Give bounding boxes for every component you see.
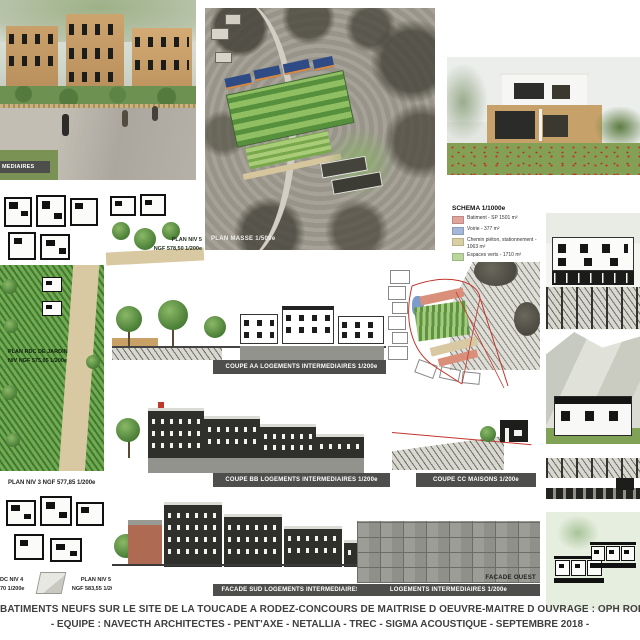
- section-building: [316, 434, 364, 461]
- facade-ouest-title: FACADE OUEST: [485, 575, 536, 581]
- unit-plan: [571, 560, 586, 576]
- unit-plan: [42, 277, 62, 292]
- section-building: [282, 306, 334, 344]
- unit-plan: [40, 234, 70, 260]
- coupe-bb-label: COUPE BB LOGEMENTS INTERMEDIAIRES 1/200e: [213, 473, 390, 487]
- unit-plan: [555, 560, 570, 576]
- glazing: [495, 111, 535, 139]
- house-roof: [215, 52, 232, 63]
- plan-units-top: [0, 192, 104, 265]
- unit-plan: [76, 502, 104, 526]
- retaining-wall: [112, 338, 158, 346]
- elevation-b-panel: [546, 332, 640, 480]
- unit-plan: [606, 546, 620, 561]
- red-boundary-lines: [386, 262, 540, 392]
- plan-group: [590, 542, 636, 570]
- tree: [112, 222, 130, 240]
- plan-niv5-label: PLAN NIV 5 NGF 578,50 1/200e: [134, 236, 202, 254]
- label-line: NGF 578,50 1/200e: [134, 245, 202, 254]
- coupe-bb-panel: COUPE BB LOGEMENTS INTERMEDIAIRES 1/200e: [112, 392, 390, 489]
- footer-line2: - EQUIPE : NAVECTH ARCHITECTES - PENT'AX…: [0, 619, 640, 630]
- plan-niv3-label: PLAN NIV 3 NGF 577,85 1/200e: [0, 473, 112, 493]
- unit-plan: [110, 196, 136, 216]
- facade-block-red: [128, 520, 162, 565]
- tree: [204, 316, 226, 338]
- unit-plan: [70, 198, 98, 226]
- facade-block: [164, 502, 222, 567]
- plan-masse-label: PLAN MASSE 1/500e: [211, 236, 275, 242]
- section-building: [240, 314, 278, 344]
- label-line: DC NIV 4: [0, 576, 34, 585]
- window-band: [9, 56, 55, 66]
- building: [66, 14, 124, 90]
- footer-line1: BATIMENTS NEUFS SUR LE SITE DE LA TOUCAD…: [0, 604, 640, 615]
- house-roof: [211, 28, 229, 40]
- window-band: [135, 37, 189, 47]
- building-row: [313, 56, 335, 71]
- facade-sud-panel: FACADE SUD LOGEMENTS INTERMEDIAIRES 1/20…: [112, 496, 390, 595]
- house-lower-volume: [487, 105, 602, 143]
- unit-plan: [591, 546, 605, 561]
- coupe-aa-panel: COUPE AA LOGEMENTS INTERMEDIAIRES 1/200e: [112, 284, 390, 378]
- legend-item: Chemin piéton, stationnement - 1063 m²: [452, 237, 538, 250]
- unit-plan: [6, 500, 36, 526]
- section-building: [260, 424, 316, 461]
- tree: [2, 385, 17, 400]
- hedge: [0, 86, 196, 106]
- tree: [4, 319, 18, 333]
- elevation-building: [552, 237, 634, 271]
- bushes: [595, 107, 640, 147]
- presentation-board: MEDIAIRES PLAN MASSE 1/500e: [0, 0, 640, 640]
- window-band: [9, 34, 55, 44]
- swatch-chemin: [452, 238, 464, 246]
- render-right-panel: [447, 57, 640, 175]
- house-upper-volume: [502, 75, 587, 106]
- unit-plan: [140, 194, 166, 216]
- coupe-cc-panel: COUPE CC MAISONS 1/200e: [392, 392, 540, 489]
- facade-ouest-label: LOGEMENTS INTERMEDIAIRES 1/200e: [357, 584, 540, 596]
- coupe-aa-label: COUPE AA LOGEMENTS INTERMEDIAIRES 1/200e: [213, 360, 390, 374]
- elevation-base: [552, 271, 634, 285]
- window-band: [69, 24, 121, 35]
- label-line: PLAN RDC DE JARDIN: [8, 348, 102, 357]
- legend-label: Voirie - 377 m²: [467, 226, 500, 233]
- plan-rdc-jardin-label: PLAN RDC DE JARDIN NIV NGF 575,05 1/200e: [8, 348, 102, 366]
- facade-ouest-panel: FACADE OUEST: [357, 521, 540, 583]
- person: [122, 110, 128, 127]
- tree: [480, 426, 496, 442]
- tree: [116, 418, 140, 442]
- distant-tree: [447, 65, 487, 139]
- unit-plan: [40, 496, 72, 526]
- tree: [116, 306, 142, 332]
- person: [62, 114, 69, 136]
- window: [514, 83, 544, 99]
- tree: [2, 279, 17, 294]
- building: [6, 26, 58, 88]
- swatch-espaces-verts: [452, 253, 464, 261]
- schema-legend: SCHEMA 1/1000e Batiment - SP 1501 m² Voi…: [452, 205, 552, 269]
- swatch-voirie: [452, 227, 464, 235]
- label-line: NIV NGF 575,05 1/200e: [8, 357, 102, 366]
- section-poche: [148, 458, 364, 473]
- elevation-house: [554, 396, 632, 436]
- unit-plan: [14, 534, 44, 560]
- glazing: [543, 115, 568, 137]
- small-house: [616, 478, 634, 490]
- label-line: PLAN NIV 5: [134, 236, 202, 245]
- maisons-plans-panel: [546, 512, 640, 610]
- render-left-panel: MEDIAIRES: [0, 0, 196, 180]
- legend-item: Espaces verts - 1710 m²: [452, 252, 552, 261]
- render-left-caption: MEDIAIRES: [0, 161, 50, 173]
- facade-block: [284, 526, 342, 567]
- flower-meadow: [447, 143, 640, 175]
- coupe-cc-label: COUPE CC MAISONS 1/200e: [416, 473, 536, 487]
- section-house: [500, 420, 528, 442]
- legend-title: SCHEMA 1/1000e: [452, 205, 552, 212]
- plan-rdc-niv4-label: DC NIV 4 70 1/200e: [0, 576, 34, 594]
- schema-site-plan: [386, 262, 540, 392]
- section-building: [338, 316, 384, 344]
- legend-item: Voirie - 377 m²: [452, 226, 552, 235]
- plan-rdc-jardin: PLAN RDC DE JARDIN NIV NGF 575,05 1/200e: [0, 265, 104, 471]
- legend-label: Espaces verts - 1710 m²: [467, 252, 521, 259]
- legend-label: Batiment - SP 1501 m²: [467, 215, 518, 222]
- window-band: [69, 72, 121, 82]
- plan-units-bottom: [0, 494, 112, 572]
- unit-plan: [42, 301, 62, 316]
- unit-plan: [4, 197, 32, 227]
- building: [132, 28, 192, 88]
- post: [539, 109, 542, 141]
- person: [152, 106, 158, 121]
- unit-plan: [8, 232, 36, 260]
- legend-item: Batiment - SP 1501 m²: [452, 215, 552, 224]
- ground-hatch: [112, 348, 222, 360]
- building-row: [224, 73, 252, 89]
- unit-plan: [36, 195, 66, 227]
- swatch-batiment: [452, 216, 464, 224]
- elevation-a-panel: [546, 213, 640, 330]
- house-roof: [225, 14, 241, 25]
- legend-label: Chemin piéton, stationnement - 1063 m²: [467, 237, 538, 250]
- tree: [6, 433, 20, 447]
- base-hatch: [546, 458, 640, 478]
- retaining-wall-hatch: [546, 287, 640, 329]
- unit-plan: [50, 538, 82, 562]
- footer-title-block: BATIMENTS NEUFS SUR LE SITE DE LA TOUCAD…: [0, 604, 640, 630]
- section-building: [148, 408, 204, 461]
- window-band: [69, 48, 121, 59]
- window: [552, 85, 570, 99]
- ground-line: [112, 564, 390, 566]
- label-line: 70 1/200e: [0, 585, 34, 594]
- window-band: [135, 60, 189, 70]
- plan-niv5-top: PLAN NIV 5 NGF 578,50 1/200e: [106, 192, 204, 284]
- plan-masse-panel: PLAN MASSE 1/500e: [205, 8, 435, 250]
- tree: [158, 300, 188, 330]
- small-sketch: [36, 572, 67, 594]
- unit-plan: [621, 546, 635, 561]
- section-building: [204, 416, 260, 461]
- tree-trunk: [128, 440, 130, 458]
- chimney-accent: [158, 402, 164, 408]
- facade-block: [224, 514, 282, 567]
